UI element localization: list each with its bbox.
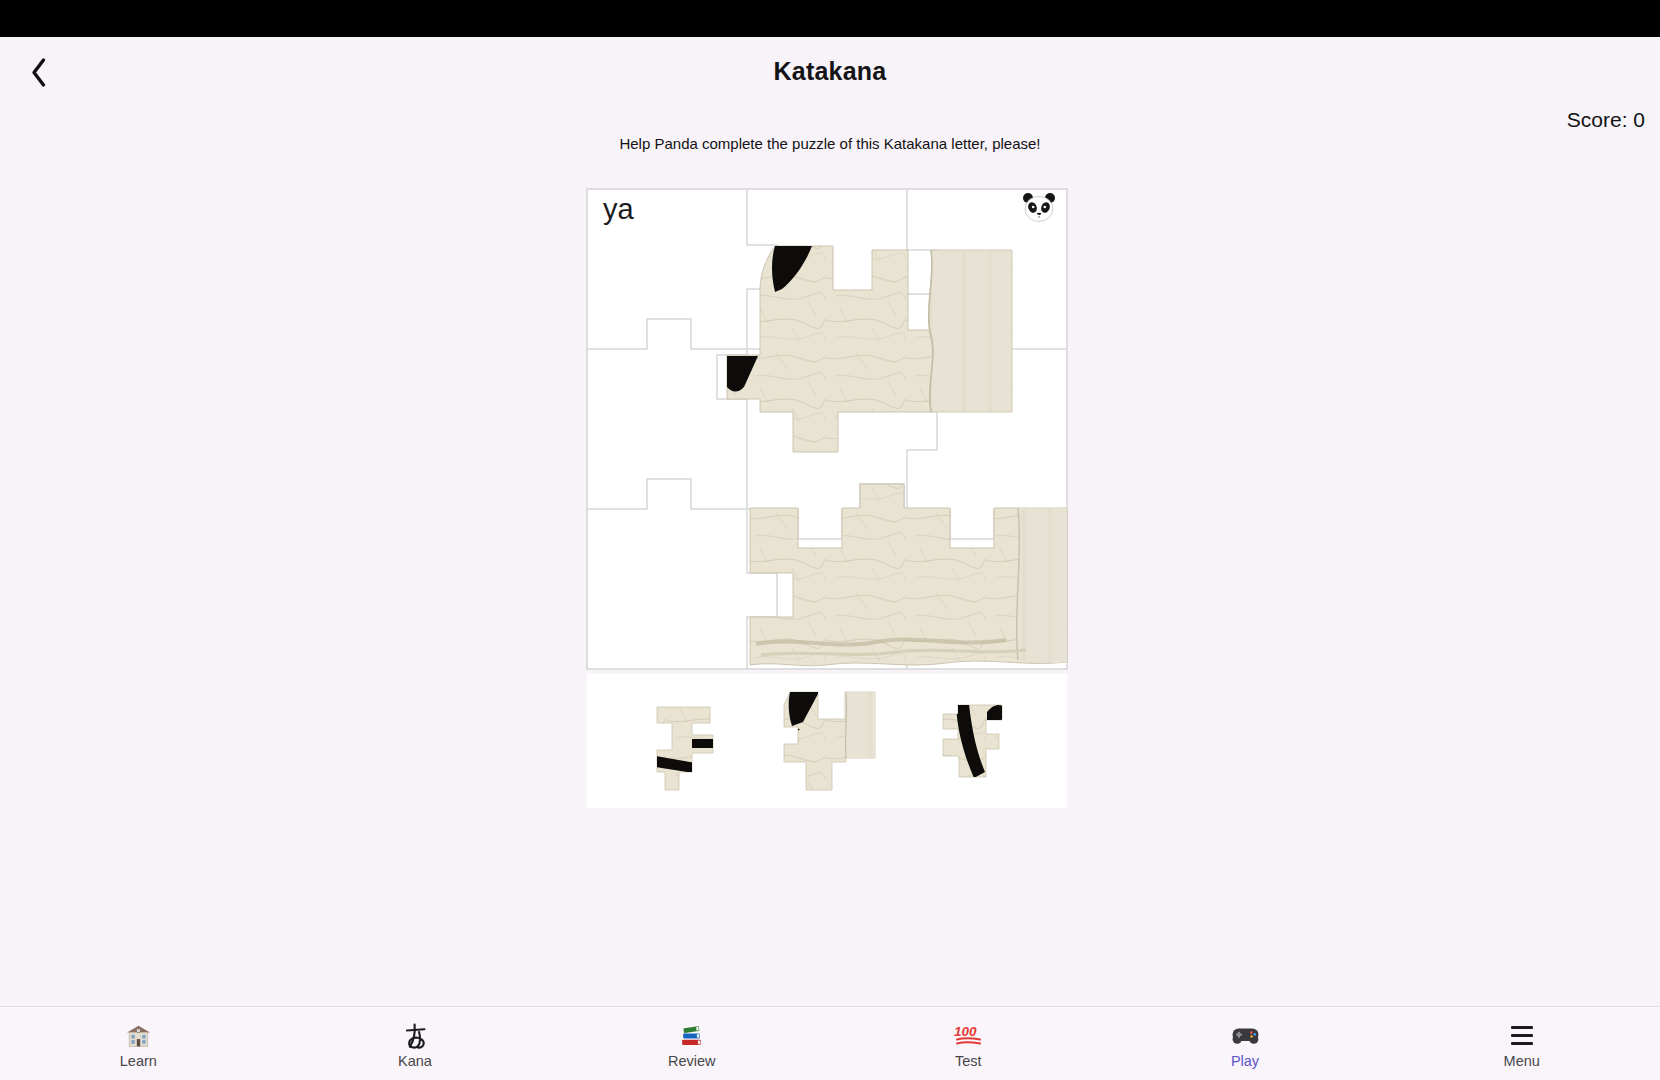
nav-label-review: Review bbox=[668, 1053, 716, 1070]
nav-label-test: Test bbox=[955, 1053, 982, 1070]
puzzle-board[interactable] bbox=[586, 188, 1068, 808]
nav-item-review[interactable]: Review bbox=[553, 1007, 830, 1080]
kana-a-icon bbox=[402, 1020, 429, 1050]
gamepad-icon bbox=[1230, 1020, 1261, 1050]
nav-label-learn: Learn bbox=[120, 1053, 157, 1070]
nav-label-menu: Menu bbox=[1504, 1053, 1540, 1070]
nav-item-test[interactable]: 100 Test bbox=[830, 1007, 1107, 1080]
hundred-points-icon: 100 bbox=[953, 1020, 983, 1050]
svg-text:100: 100 bbox=[954, 1024, 977, 1039]
menu-icon bbox=[1511, 1020, 1533, 1050]
status-bar bbox=[0, 0, 1660, 37]
books-icon bbox=[678, 1020, 705, 1050]
instruction-text: Help Panda complete the puzzle of this K… bbox=[0, 135, 1660, 152]
app-screen: Katakana Score: 0 Help Panda complete th… bbox=[0, 0, 1660, 1080]
bottom-navigation: Learn Kana bbox=[0, 1006, 1660, 1080]
board-area[interactable] bbox=[587, 189, 1067, 669]
school-icon bbox=[125, 1020, 152, 1050]
page-title: Katakana bbox=[0, 57, 1660, 86]
nav-item-learn[interactable]: Learn bbox=[0, 1007, 277, 1080]
score-label: Score: 0 bbox=[1567, 108, 1645, 132]
nav-label-play: Play bbox=[1231, 1053, 1259, 1070]
puzzle-card: ya bbox=[586, 188, 1068, 808]
placed-piece-bottom[interactable] bbox=[750, 484, 1067, 666]
nav-item-kana[interactable]: Kana bbox=[277, 1007, 554, 1080]
nav-item-menu[interactable]: Menu bbox=[1383, 1007, 1660, 1080]
tray-area bbox=[587, 674, 1067, 808]
nav-item-play[interactable]: Play bbox=[1107, 1007, 1384, 1080]
nav-label-kana: Kana bbox=[398, 1053, 432, 1070]
panda-icon bbox=[1020, 191, 1058, 225]
kana-reading-label: ya bbox=[603, 193, 634, 226]
